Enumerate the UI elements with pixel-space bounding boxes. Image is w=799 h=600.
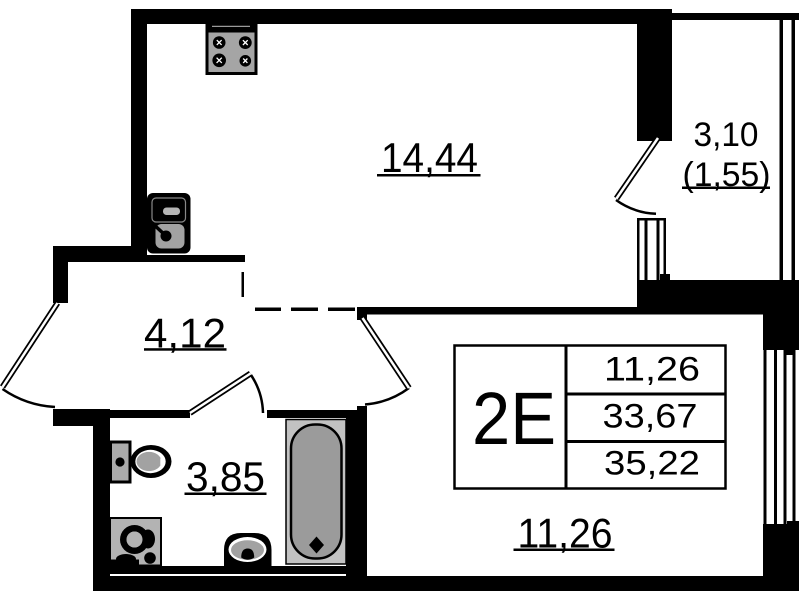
svg-text:2E: 2E [472,377,556,460]
svg-text:3,10: 3,10 [694,116,759,154]
svg-text:35,22: 35,22 [604,445,700,483]
svg-text:11,26: 11,26 [604,351,700,389]
svg-text:33,67: 33,67 [603,398,698,436]
svg-text:14,44: 14,44 [381,134,478,181]
